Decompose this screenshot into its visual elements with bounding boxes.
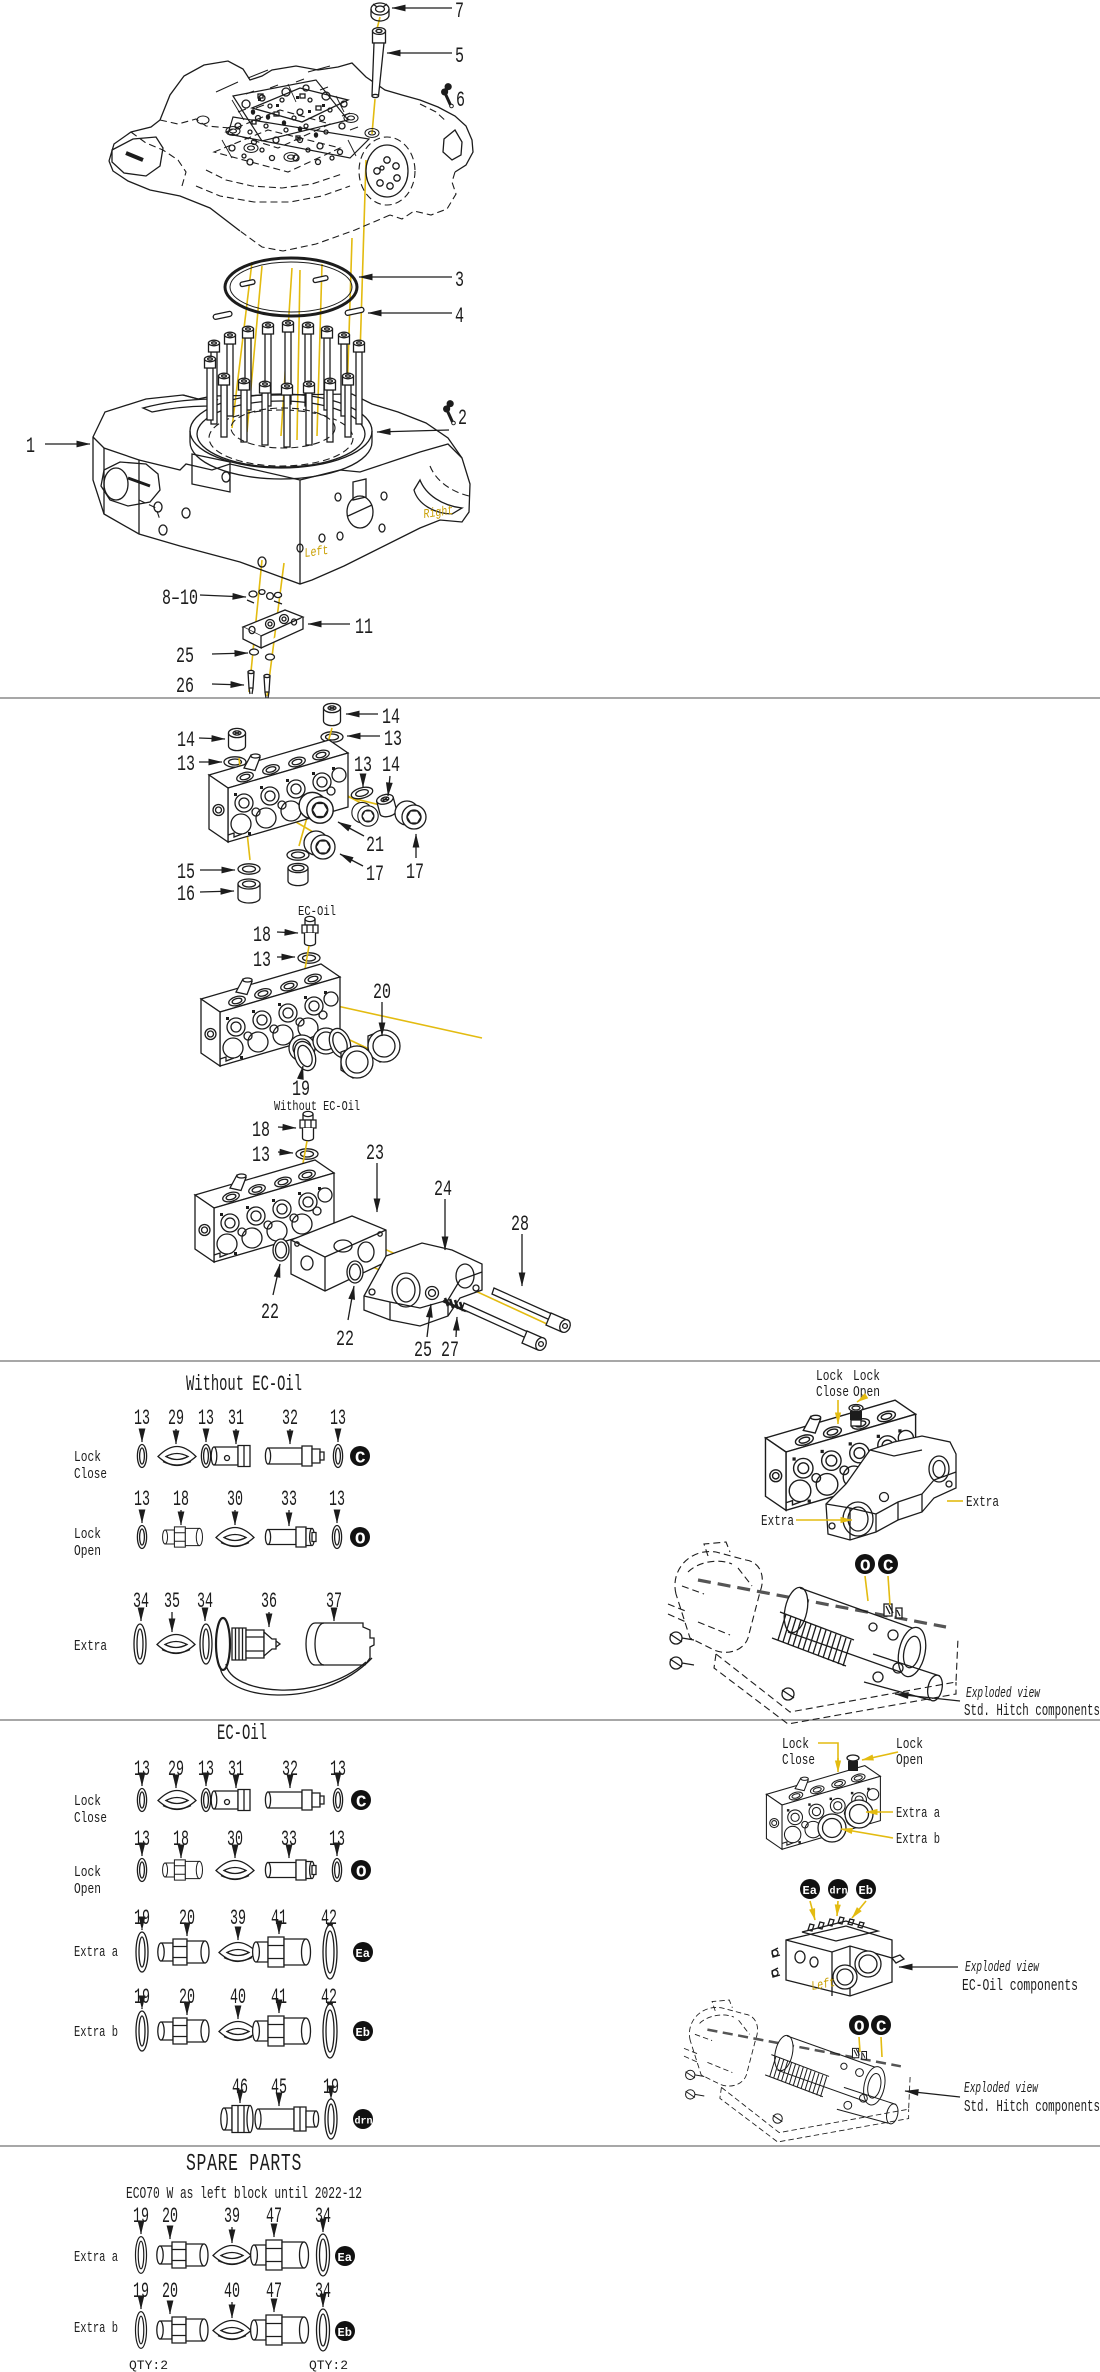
svg-text:Without EC-Oil: Without EC-Oil (186, 1372, 302, 1397)
svg-text:13: 13 (330, 1406, 346, 1431)
svg-text:13: 13 (134, 1406, 150, 1431)
svg-text:14: 14 (382, 753, 400, 778)
svg-text:O: O (355, 1531, 366, 1550)
svg-text:5: 5 (455, 44, 464, 69)
svg-text:drn: drn (830, 1886, 848, 1898)
svg-text:31: 31 (228, 1757, 244, 1782)
svg-text:Open: Open (74, 1881, 101, 1898)
svg-text:33: 33 (281, 1487, 297, 1512)
svg-text:Extra a: Extra a (74, 2249, 118, 2266)
svg-text:Eb: Eb (356, 2026, 370, 2040)
svg-text:36: 36 (261, 1589, 277, 1614)
svg-text:Ea: Ea (803, 1884, 817, 1898)
svg-text:32: 32 (282, 1757, 298, 1782)
svg-text:C: C (876, 2019, 887, 2038)
svg-text:ECO70 W as left block until 20: ECO70 W as left block until 2022-12 (126, 2185, 362, 2204)
svg-text:29: 29 (168, 1406, 184, 1431)
svg-text:C: C (883, 1558, 894, 1577)
svg-text:O: O (860, 1558, 871, 1577)
svg-text:Eb: Eb (859, 1884, 873, 1898)
svg-text:Exploded view: Exploded view (965, 1959, 1040, 1976)
svg-text:13: 13 (134, 1757, 150, 1782)
svg-text:Lock: Lock (896, 1736, 923, 1753)
svg-text:Eb: Eb (338, 2326, 352, 2340)
svg-text:21: 21 (366, 833, 384, 858)
svg-text:20: 20 (179, 1906, 195, 1931)
svg-text:39: 39 (224, 2204, 240, 2229)
svg-text:Lock: Lock (74, 1793, 101, 1810)
svg-text:Close: Close (74, 1466, 107, 1483)
svg-text:C: C (356, 1794, 367, 1813)
svg-text:drn: drn (355, 2116, 373, 2128)
svg-text:23: 23 (366, 1141, 384, 1166)
svg-text:16: 16 (177, 882, 195, 907)
svg-text:20: 20 (179, 1985, 195, 2010)
svg-text:27: 27 (441, 1338, 459, 1363)
svg-text:Open: Open (74, 1543, 101, 1560)
svg-text:QTY:2: QTY:2 (309, 2358, 348, 2372)
svg-text:7: 7 (455, 0, 464, 24)
svg-text:EC-Oil: EC-Oil (298, 904, 336, 920)
svg-text:Extra b: Extra b (74, 2320, 118, 2337)
svg-text:35: 35 (164, 1589, 180, 1614)
svg-text:37: 37 (326, 1589, 342, 1614)
svg-text:Extra: Extra (761, 1513, 794, 1530)
svg-text:40: 40 (224, 2279, 240, 2304)
svg-text:Std. Hitch components: Std. Hitch components (964, 2098, 1100, 2117)
svg-text:13: 13 (134, 1827, 150, 1852)
svg-text:25: 25 (176, 644, 194, 669)
svg-text:Lock: Lock (782, 1736, 809, 1753)
svg-text:28: 28 (511, 1212, 529, 1237)
svg-text:11: 11 (355, 615, 373, 640)
svg-text:20: 20 (162, 2204, 178, 2229)
svg-text:13: 13 (134, 1487, 150, 1512)
svg-text:41: 41 (271, 1906, 287, 1931)
svg-text:14: 14 (177, 728, 195, 753)
svg-text:C: C (355, 1450, 366, 1469)
svg-text:41: 41 (271, 1985, 287, 2010)
svg-text:2: 2 (458, 406, 467, 431)
svg-text:31: 31 (228, 1406, 244, 1431)
svg-text:13: 13 (384, 727, 402, 752)
svg-text:20: 20 (162, 2279, 178, 2304)
svg-text:Extra b: Extra b (74, 2024, 118, 2041)
svg-text:13: 13 (177, 752, 195, 777)
svg-text:34: 34 (315, 2279, 331, 2304)
svg-text:18: 18 (173, 1487, 189, 1512)
svg-text:Lock: Lock (74, 1526, 101, 1543)
svg-text:33: 33 (281, 1827, 297, 1852)
svg-text:25: 25 (414, 1338, 432, 1363)
svg-text:O: O (854, 2019, 865, 2038)
svg-text:Extra a: Extra a (896, 1805, 940, 1822)
svg-text:Extra b: Extra b (896, 1831, 940, 1848)
svg-text:18: 18 (253, 923, 271, 948)
svg-text:22: 22 (336, 1327, 354, 1352)
svg-text:19: 19 (134, 1985, 150, 2010)
svg-text:40: 40 (230, 1985, 246, 2010)
svg-text:29: 29 (168, 1757, 184, 1782)
svg-text:Lock: Lock (74, 1449, 101, 1466)
svg-text:4: 4 (455, 304, 464, 329)
svg-text:30: 30 (227, 1827, 243, 1852)
svg-text:Close: Close (816, 1384, 849, 1401)
svg-text:13: 13 (329, 1487, 345, 1512)
svg-text:EC-Oil components: EC-Oil components (962, 1977, 1078, 1996)
svg-text:Lock: Lock (853, 1368, 880, 1385)
svg-text:13: 13 (354, 753, 372, 778)
svg-text:Ea: Ea (356, 1947, 370, 1961)
svg-text:20: 20 (373, 980, 391, 1005)
svg-text:18: 18 (252, 1118, 270, 1143)
svg-text:13: 13 (330, 1757, 346, 1782)
svg-text:Extra a: Extra a (74, 1944, 118, 1961)
svg-text:24: 24 (434, 1177, 452, 1202)
svg-text:6: 6 (456, 88, 465, 113)
svg-text:47: 47 (266, 2279, 282, 2304)
svg-text:Lock: Lock (74, 1864, 101, 1881)
svg-text:19: 19 (323, 2075, 339, 2100)
svg-text:19: 19 (134, 1906, 150, 1931)
svg-text:17: 17 (406, 860, 424, 885)
svg-text:O: O (356, 1864, 367, 1883)
svg-text:18: 18 (173, 1827, 189, 1852)
svg-text:13: 13 (253, 948, 271, 973)
svg-text:Std. Hitch components: Std. Hitch components (964, 1702, 1100, 1721)
svg-text:Without EC-Oil: Without EC-Oil (274, 1099, 360, 1115)
svg-text:Close: Close (74, 1810, 107, 1827)
svg-text:32: 32 (282, 1406, 298, 1431)
svg-text:Lock: Lock (816, 1368, 843, 1385)
svg-text:13: 13 (329, 1827, 345, 1852)
svg-text:22: 22 (261, 1300, 279, 1325)
svg-text:13: 13 (198, 1757, 214, 1782)
svg-text:13: 13 (252, 1143, 270, 1168)
svg-text:Ea: Ea (338, 2251, 352, 2265)
svg-text:Open: Open (896, 1752, 923, 1769)
svg-text:17: 17 (366, 862, 384, 887)
svg-text:47: 47 (266, 2204, 282, 2229)
svg-text:3: 3 (455, 268, 464, 293)
svg-text:Open: Open (853, 1384, 880, 1401)
svg-text:45: 45 (271, 2075, 287, 2100)
svg-text:Exploded view: Exploded view (966, 1685, 1041, 1702)
svg-text:1: 1 (26, 434, 35, 459)
svg-text:Exploded view: Exploded view (964, 2080, 1039, 2097)
svg-text:19: 19 (133, 2279, 149, 2304)
svg-text:SPARE PARTS: SPARE PARTS (186, 2151, 302, 2178)
svg-text:EC-Oil: EC-Oil (217, 1721, 267, 1746)
svg-text:Extra: Extra (74, 1638, 107, 1655)
svg-text:19: 19 (133, 2204, 149, 2229)
svg-text:34: 34 (315, 2204, 331, 2229)
svg-text:26: 26 (176, 674, 194, 699)
svg-text:Extra: Extra (966, 1494, 999, 1511)
svg-text:34: 34 (197, 1589, 213, 1614)
svg-text:46: 46 (232, 2075, 248, 2100)
svg-text:34: 34 (133, 1589, 149, 1614)
svg-text:13: 13 (198, 1406, 214, 1431)
svg-text:39: 39 (230, 1906, 246, 1931)
svg-text:30: 30 (227, 1487, 243, 1512)
svg-text:8–10: 8–10 (162, 586, 198, 611)
svg-text:QTY:2: QTY:2 (129, 2358, 168, 2372)
svg-text:Close: Close (782, 1752, 815, 1769)
